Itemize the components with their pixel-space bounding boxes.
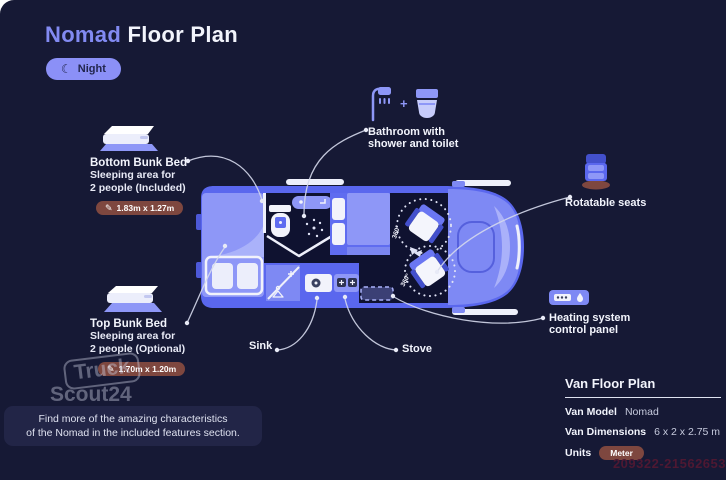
spec-panel-title: Van Floor Plan — [565, 376, 721, 398]
callout-label: shower and toilet — [368, 138, 458, 150]
callout-title: Top Bunk Bed — [90, 318, 185, 330]
bunk-bed-icon — [96, 120, 162, 154]
callout-label: Rotatable seats — [565, 197, 646, 209]
spec-label: Van Dimensions — [565, 426, 646, 438]
info-note-line: Find more of the amazing characteristics — [38, 412, 227, 426]
spec-value: Nomad — [625, 406, 659, 418]
callout-desc: 2 people (Included) — [90, 182, 187, 195]
heating-panel-icon — [549, 290, 589, 306]
toilet-icon — [414, 87, 440, 119]
callout-sink: Sink — [249, 340, 272, 352]
watermark-logo: Truck Scout24 — [50, 356, 140, 407]
callout-label: Bathroom with — [368, 126, 458, 138]
callout-title: Bottom Bunk Bed — [90, 157, 187, 169]
callout-rotatable-seats: Rotatable seats — [565, 151, 646, 209]
plan-sink — [305, 274, 332, 292]
callout-heating: Heating system control panel — [549, 290, 630, 336]
plan-dinette — [330, 193, 390, 255]
plan-stove — [334, 274, 359, 292]
spec-row-van-model: Van Model Nomad — [565, 406, 721, 418]
info-note-line: of the Nomad in the included features se… — [26, 426, 240, 440]
spec-panel: Van Floor Plan Van Model Nomad Van Dimen… — [565, 376, 721, 460]
seat-icon — [576, 151, 616, 191]
reference-number: 209322-21562653 — [613, 456, 726, 471]
pencil-icon: ✎ — [105, 204, 113, 213]
spec-label: Van Model — [565, 406, 617, 418]
spec-value: 6 x 2 x 2.75 m — [654, 426, 720, 438]
callout-bottom-bunk-bed: Bottom Bunk Bed Sleeping area for 2 peop… — [90, 120, 187, 215]
callout-label: Heating system — [549, 312, 630, 324]
plan-heating-panel — [361, 287, 393, 300]
spec-row-van-dimensions: Van Dimensions 6 x 2 x 2.75 m — [565, 426, 721, 438]
dimensions-value: 1.83m x 1.27m — [117, 203, 175, 213]
shower-icon — [368, 84, 394, 122]
callout-desc: 2 people (Optional) — [90, 343, 185, 356]
callout-desc: Sleeping area for — [90, 169, 187, 182]
dimensions-badge: ✎ 1.83m x 1.27m — [96, 201, 183, 215]
callout-bathroom: + Bathroom with shower and toilet — [368, 84, 458, 150]
bunk-bed-icon — [100, 281, 166, 315]
spec-label: Units — [565, 447, 591, 459]
callout-label: control panel — [549, 324, 630, 336]
plus-icon: + — [400, 96, 408, 111]
callout-stove: Stove — [402, 343, 432, 355]
info-note: Find more of the amazing characteristics… — [4, 406, 262, 446]
plan-bed — [202, 193, 266, 297]
floor-plan-page: Nomad Floor Plan ☾ Night — [0, 0, 726, 480]
callout-desc: Sleeping area for — [90, 330, 185, 343]
